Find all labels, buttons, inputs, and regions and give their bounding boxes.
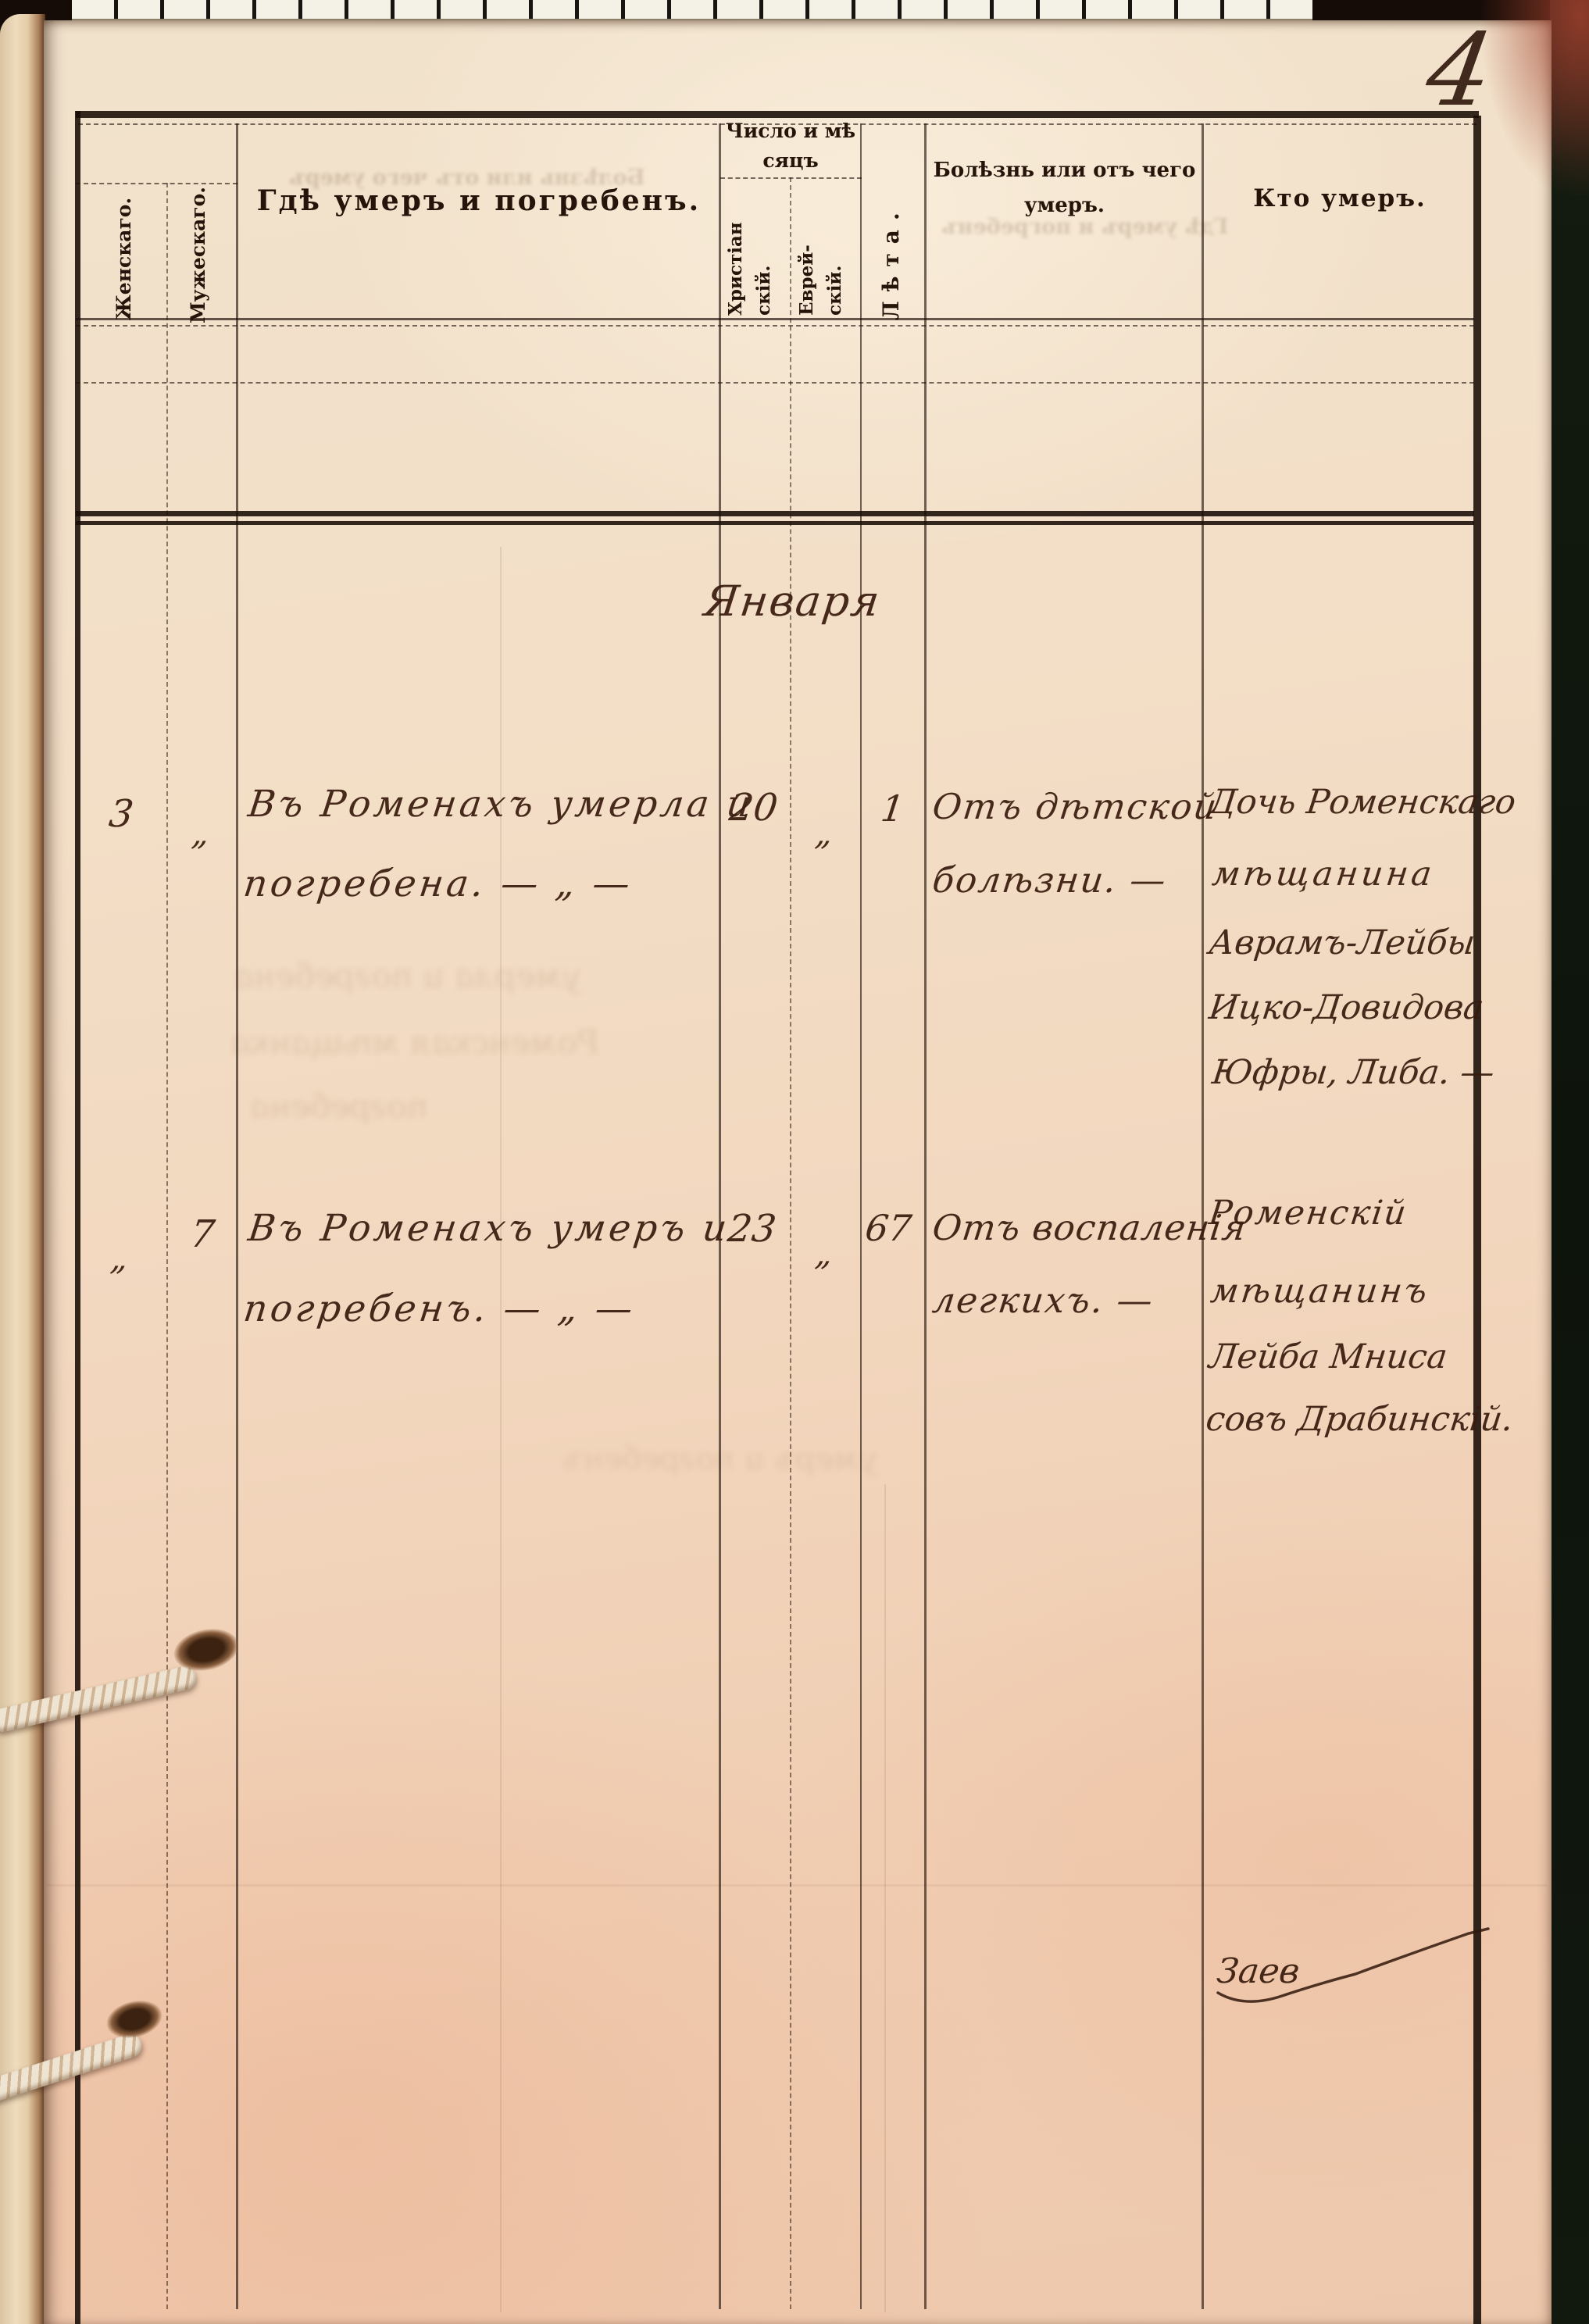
column-header-male: Мужескаго.	[187, 184, 209, 323]
row1-date-christian: 20	[727, 786, 780, 830]
column-header-christian: Христіан	[725, 191, 746, 316]
signature-flourish	[1207, 1918, 1496, 2019]
previous-page-edge	[0, 14, 45, 2324]
header-bottom-rule-2	[76, 325, 1474, 327]
row2-cause-line2: легкихъ. —	[930, 1280, 1156, 1321]
section-heavy-rule	[76, 511, 1474, 516]
row1-place-line1: Въ Роменахъ умерла и	[246, 783, 756, 826]
row1-who-line3: Аврамъ-Лейбы	[1207, 923, 1477, 962]
paper-crease	[47, 1884, 1547, 1887]
row2-who-line3: Лейба Мниса	[1207, 1337, 1449, 1376]
column-header-age: Лѣта.	[878, 130, 904, 320]
bleedthrough-text: умерла и погребена	[232, 957, 584, 995]
gender-columns-top-rule	[76, 183, 237, 184]
table-left-border	[75, 111, 80, 2324]
paper-crease	[884, 1484, 886, 2312]
row1-who-line4: Ицко-Довидова	[1207, 988, 1486, 1027]
empty-row-rule	[76, 382, 1474, 384]
row1-cause-line1: Отъ дѣтской	[930, 786, 1220, 827]
row1-who-line1: Дочь Роменскаго	[1207, 783, 1518, 822]
column-header-date-group-2: сяцъ	[720, 149, 861, 172]
divider-female-male	[166, 183, 168, 2309]
row2-place-line2: погребенъ. — „ —	[241, 1287, 638, 1330]
column-header-jewish-2: скій.	[824, 191, 845, 316]
column-header-christian-2: скій.	[753, 191, 774, 316]
column-header-date-group: Число и мѣ	[720, 120, 861, 142]
divider-jewish-age	[860, 123, 862, 2309]
row1-who-line5: Юфры, Либа. —	[1210, 1053, 1497, 1092]
row2-cause-line1: Отъ воспаленія	[930, 1207, 1249, 1248]
column-header-place: Гдѣ умеръ и погребенъ.	[239, 184, 719, 217]
bleedthrough-text: Роменская мѣщанка	[228, 1023, 602, 1062]
section-heavy-rule-2	[76, 521, 1474, 525]
header-bottom-rule	[76, 318, 1474, 320]
bleedthrough-text: погребена	[248, 1087, 430, 1126]
row2-who-line4: совъ Драбинскій.	[1204, 1400, 1516, 1439]
row1-who-line2: мѣщанина	[1210, 855, 1437, 894]
divider-male-place	[236, 123, 238, 2309]
row1-place-line2: погребена. — „ —	[241, 862, 636, 905]
row2-age: 67	[863, 1207, 914, 1249]
month-heading: Января	[702, 577, 884, 626]
table-top-border	[76, 111, 1479, 118]
row2-place-line1: Въ Роменахъ умеръ и	[246, 1207, 733, 1250]
row2-who-line1: Роменскій	[1207, 1194, 1410, 1233]
divider-age-cause	[924, 123, 927, 2309]
divider-christian-jewish	[790, 177, 791, 2309]
column-header-jewish: Еврей-	[796, 191, 817, 316]
column-header-who: Кто умеръ.	[1205, 184, 1475, 212]
column-header-female: Женскаго.	[112, 186, 135, 320]
bleedthrough-text: Гдѣ умеръ и погребенъ	[941, 215, 1228, 239]
book-cover-edge	[1550, 0, 1589, 2324]
row2-date-christian: 23	[726, 1207, 779, 1251]
column-header-cause-2: умеръ.	[927, 194, 1202, 217]
row2-male-count: 7	[188, 1212, 217, 1256]
measuring-ruler	[72, 0, 1312, 21]
row1-cause-line2: болѣзни. —	[930, 859, 1169, 901]
column-header-cause: Болѣзнь или отъ чего	[927, 159, 1202, 182]
row2-who-line2: мѣщанинъ	[1209, 1272, 1431, 1311]
